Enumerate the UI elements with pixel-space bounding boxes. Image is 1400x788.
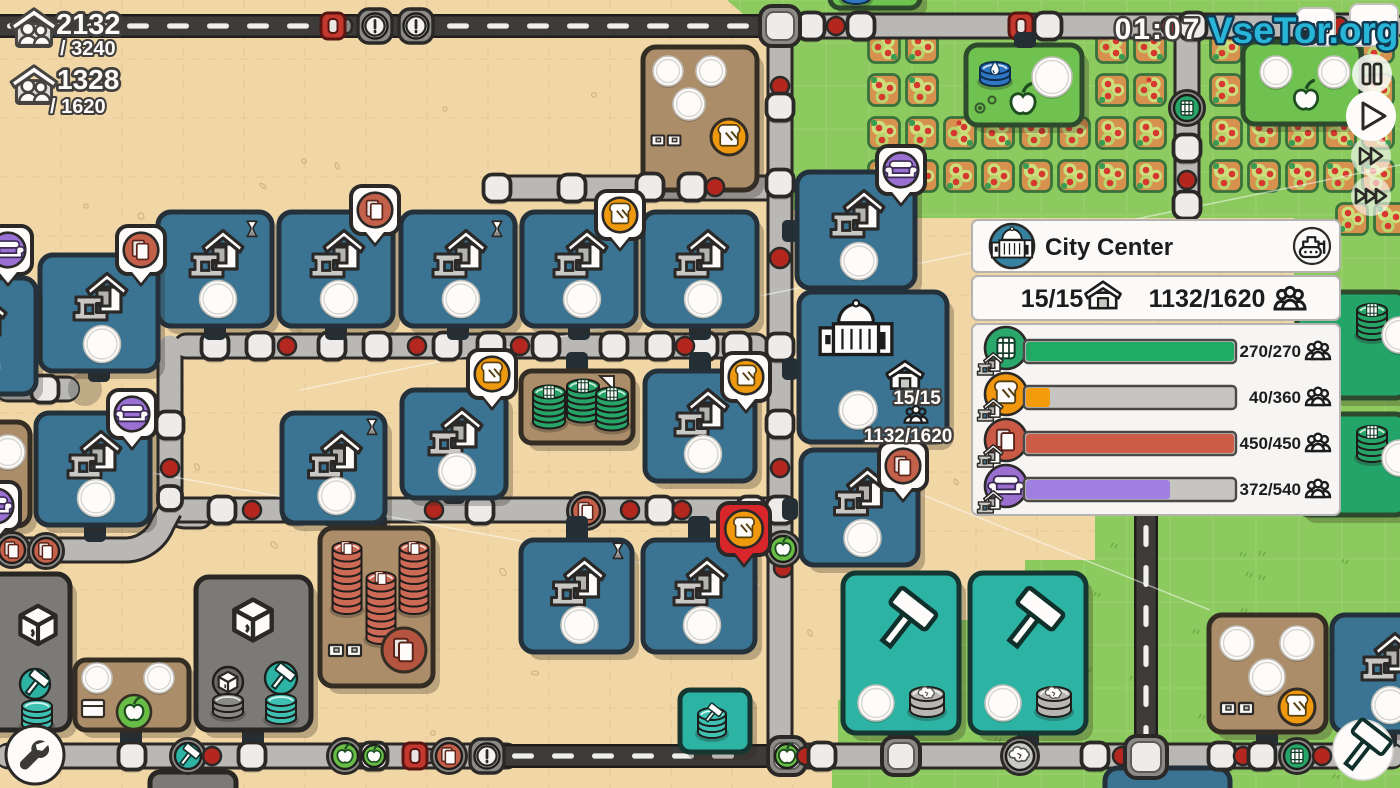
svg-text:1132/1620: 1132/1620: [864, 426, 953, 447]
svg-text:15/15: 15/15: [1021, 285, 1084, 313]
svg-text:2132: 2132: [56, 9, 121, 41]
svg-text:/ 1620: / 1620: [50, 96, 106, 118]
svg-text:City Center: City Center: [1045, 234, 1173, 261]
svg-text:01:07: 01:07: [1115, 13, 1202, 46]
svg-text:1328: 1328: [57, 64, 119, 95]
svg-text:VseTor.org: VseTor.org: [1208, 10, 1399, 51]
svg-text:1132/1620: 1132/1620: [1149, 285, 1266, 313]
svg-text:270/270: 270/270: [1240, 342, 1301, 361]
svg-text:450/450: 450/450: [1240, 434, 1301, 453]
svg-text:372/540: 372/540: [1240, 480, 1301, 499]
svg-text:/ 3240: / 3240: [60, 38, 116, 60]
svg-text:40/360: 40/360: [1249, 388, 1301, 407]
